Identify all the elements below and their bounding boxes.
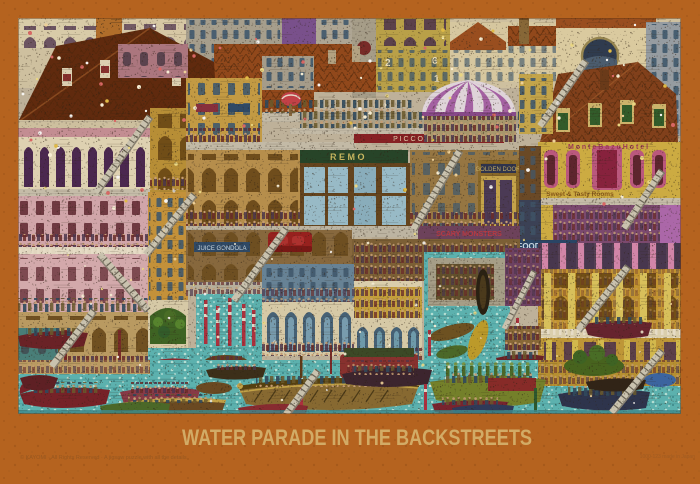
svg-text:WATER PARADE IN THE BACKSTREET: WATER PARADE IN THE BACKSTREETS <box>182 425 532 450</box>
svg-text:© KAYOMI · All Rights Reserved: © KAYOMI · All Rights Reserved · A jigsa… <box>20 454 187 461</box>
svg-text:1000-123 made in Japan: 1000-123 made in Japan <box>640 454 696 460</box>
